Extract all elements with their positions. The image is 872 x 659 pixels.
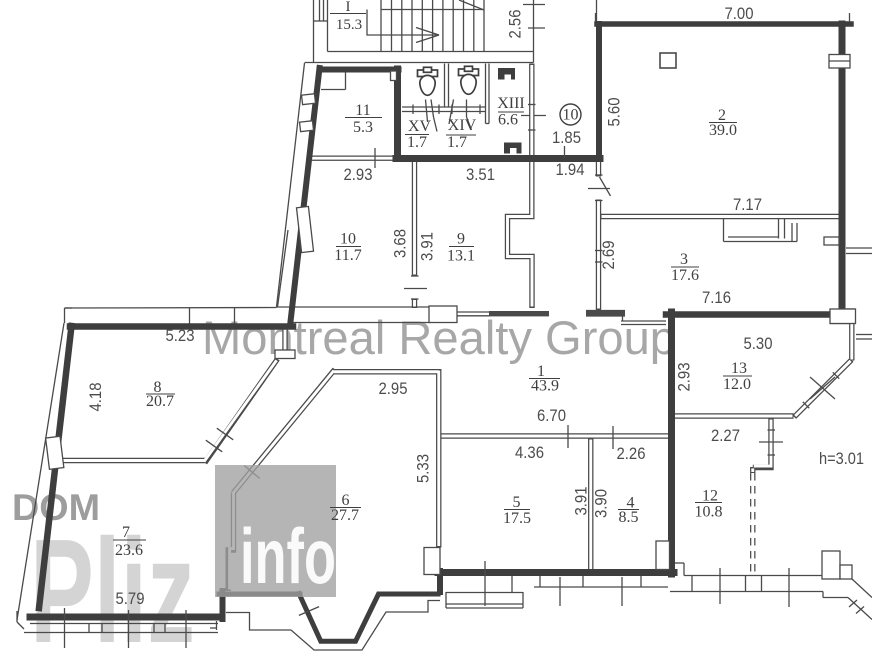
svg-text:39.0: 39.0 <box>709 122 737 139</box>
svg-text:1.7: 1.7 <box>407 134 427 151</box>
svg-text:1.7: 1.7 <box>447 134 467 151</box>
svg-text:5.60: 5.60 <box>605 98 623 127</box>
svg-text:3.90: 3.90 <box>592 489 610 518</box>
svg-text:3.91: 3.91 <box>572 487 590 516</box>
svg-text:43.9: 43.9 <box>531 378 559 395</box>
svg-text:h=3.01: h=3.01 <box>819 450 864 468</box>
svg-text:11: 11 <box>355 102 370 119</box>
svg-text:6.70: 6.70 <box>537 407 566 425</box>
svg-text:7: 7 <box>122 524 130 541</box>
svg-text:10: 10 <box>340 231 356 248</box>
svg-text:12.0: 12.0 <box>723 376 751 393</box>
svg-text:4.18: 4.18 <box>87 383 105 412</box>
svg-text:3.91: 3.91 <box>418 232 436 261</box>
svg-text:17.6: 17.6 <box>671 267 699 284</box>
svg-text:XIV: XIV <box>448 117 477 134</box>
svg-text:10.8: 10.8 <box>695 504 723 521</box>
svg-text:5.33: 5.33 <box>414 454 432 483</box>
svg-text:2.93: 2.93 <box>344 166 373 184</box>
svg-text:2.27: 2.27 <box>711 427 740 445</box>
svg-text:7.17: 7.17 <box>733 196 762 214</box>
svg-text:8.5: 8.5 <box>619 509 639 526</box>
svg-text:5.79: 5.79 <box>116 590 145 608</box>
svg-text:9: 9 <box>457 231 465 248</box>
svg-text:5: 5 <box>513 494 521 511</box>
svg-text:info: info <box>240 512 336 600</box>
svg-text:23.6: 23.6 <box>115 542 143 559</box>
svg-text:27.7: 27.7 <box>331 507 359 524</box>
svg-text:2.93: 2.93 <box>675 363 693 392</box>
svg-text:17.5: 17.5 <box>503 510 531 527</box>
svg-text:4.36: 4.36 <box>515 444 544 462</box>
svg-text:11.7: 11.7 <box>334 247 361 264</box>
svg-text:Pliz: Pliz <box>30 509 195 659</box>
svg-text:7.16: 7.16 <box>702 289 731 307</box>
svg-text:XIII: XIII <box>497 95 525 112</box>
svg-text:13.1: 13.1 <box>447 248 475 265</box>
svg-text:2.95: 2.95 <box>379 380 408 398</box>
svg-text:3: 3 <box>680 251 688 268</box>
svg-text:5.23: 5.23 <box>166 327 195 345</box>
svg-text:1.85: 1.85 <box>552 129 581 147</box>
svg-text:1.94: 1.94 <box>556 161 585 179</box>
svg-text:5.3: 5.3 <box>353 119 373 136</box>
svg-text:5.30: 5.30 <box>744 335 773 353</box>
svg-text:2.56: 2.56 <box>506 10 524 39</box>
svg-text:13: 13 <box>731 360 747 377</box>
svg-text:6.6: 6.6 <box>498 112 518 129</box>
svg-text:2.26: 2.26 <box>617 445 646 463</box>
svg-text:XV: XV <box>408 118 432 135</box>
svg-text:2.69: 2.69 <box>600 241 618 270</box>
svg-text:3.68: 3.68 <box>391 229 409 258</box>
svg-text:3.51: 3.51 <box>466 166 495 184</box>
svg-text:I: I <box>346 0 351 15</box>
svg-text:15.3: 15.3 <box>336 17 362 33</box>
svg-text:10: 10 <box>563 107 579 124</box>
svg-text:20.7: 20.7 <box>146 393 174 410</box>
svg-text:7.00: 7.00 <box>725 5 754 23</box>
